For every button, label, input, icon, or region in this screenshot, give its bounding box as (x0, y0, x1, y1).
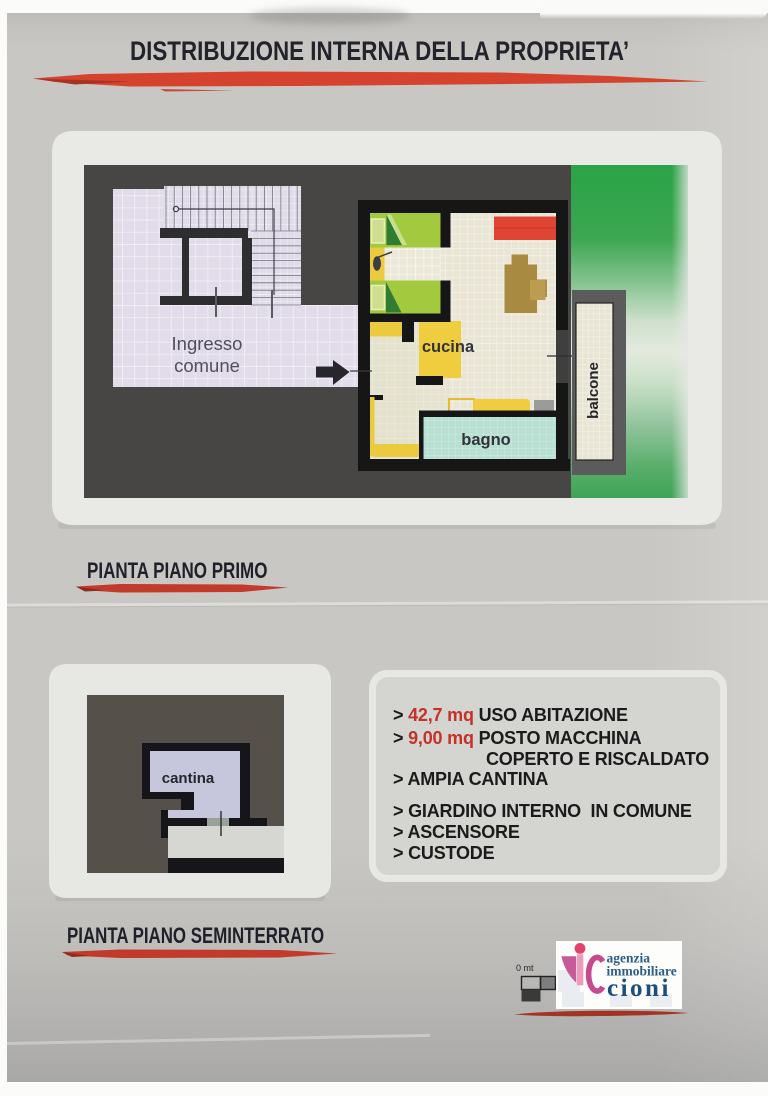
svg-text:comune: comune (174, 355, 240, 376)
svg-text:0 mt: 0 mt (516, 963, 534, 973)
svg-text:bagno: bagno (461, 431, 511, 449)
svg-text:cantina: cantina (162, 770, 215, 787)
svg-text:cioni: cioni (607, 975, 671, 1002)
svg-text:balcone: balcone (585, 362, 602, 419)
svg-text:Ingresso: Ingresso (172, 333, 243, 354)
svg-text:cucina: cucina (422, 338, 475, 356)
